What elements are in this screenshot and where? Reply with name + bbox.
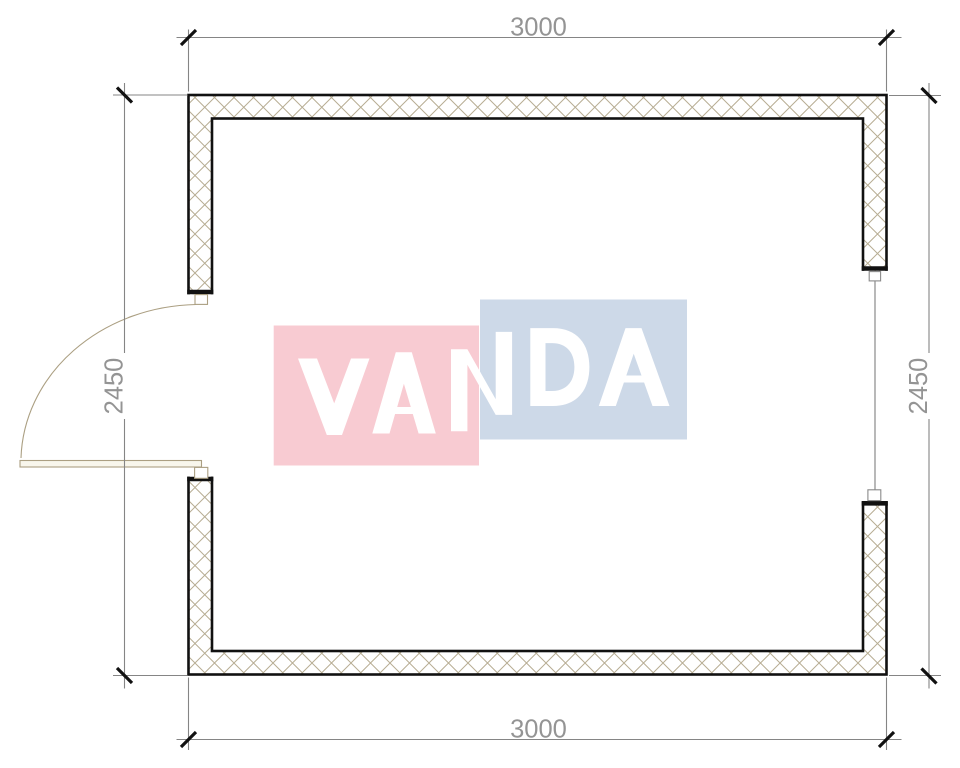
svg-text:2450: 2450 bbox=[101, 358, 129, 415]
svg-text:2450: 2450 bbox=[905, 358, 933, 415]
svg-text:3000: 3000 bbox=[510, 716, 567, 744]
svg-text:3000: 3000 bbox=[510, 14, 567, 42]
